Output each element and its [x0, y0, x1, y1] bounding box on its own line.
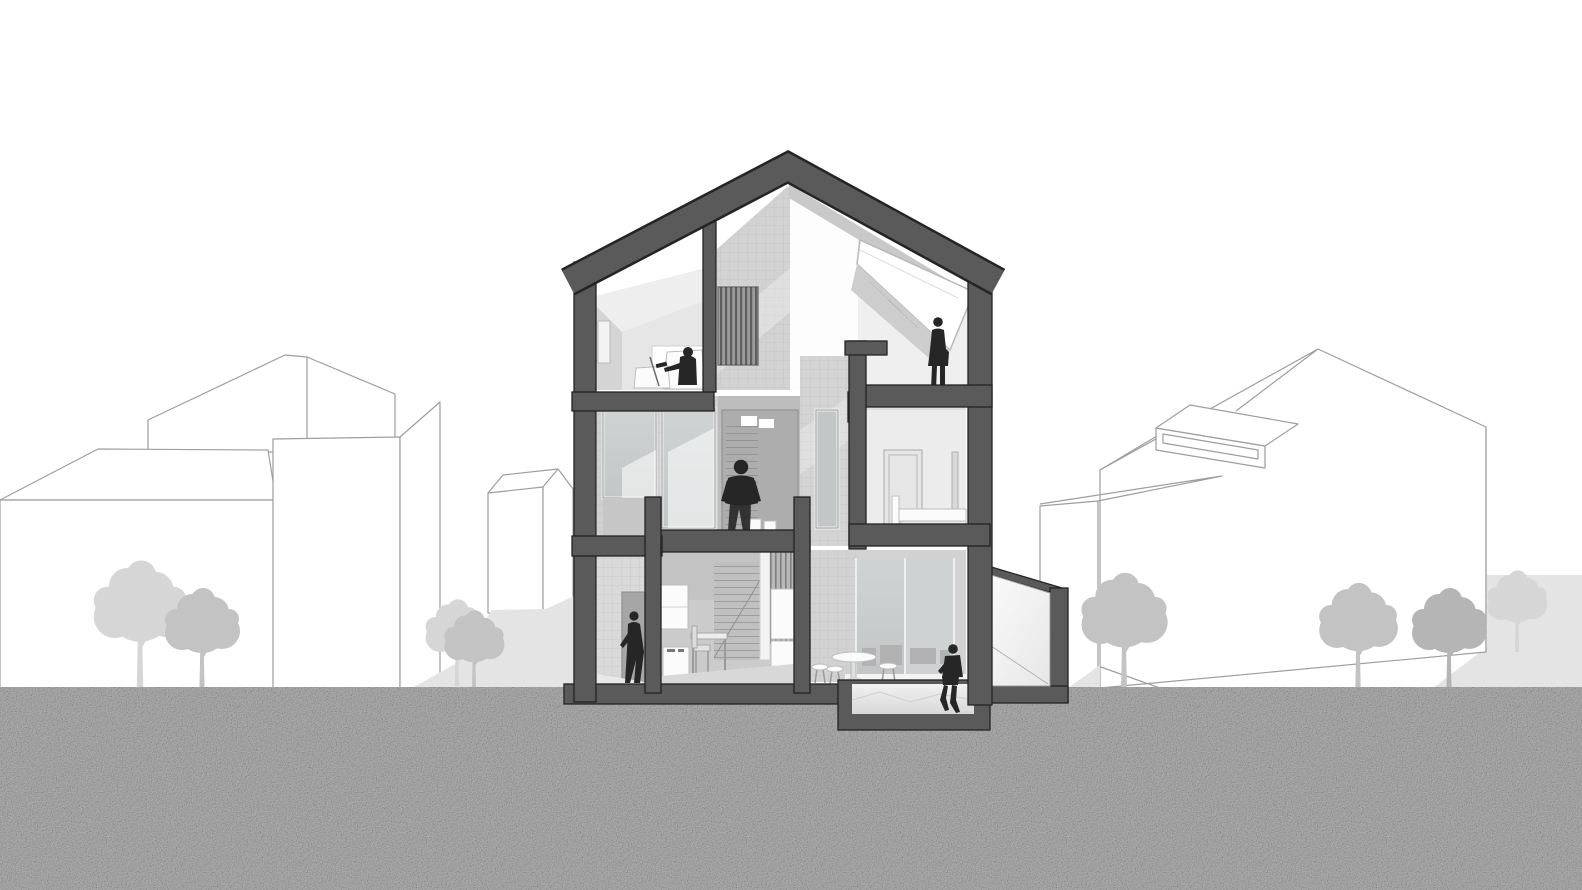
- hall-partition: [645, 497, 661, 693]
- tower-front: [273, 437, 400, 688]
- bedroom-wall: [849, 341, 866, 549]
- parapet-cap: [845, 341, 887, 355]
- courtyard-wall: [988, 566, 1068, 703]
- section-perspective-illustration: [0, 0, 1582, 890]
- right-wall: [968, 264, 992, 705]
- illustration-stage: [0, 0, 1582, 890]
- first-floor-slab: [646, 530, 810, 552]
- door-lite: [759, 419, 774, 428]
- stair-stringer: [760, 552, 770, 660]
- door-lite: [741, 416, 757, 426]
- kitchen-study: [661, 550, 798, 687]
- slot-window: [816, 410, 838, 528]
- staircase: [714, 562, 766, 660]
- attic-floor-slab: [858, 385, 992, 407]
- attic-floor-slab: [572, 392, 714, 411]
- cooktop: [667, 649, 675, 652]
- left-wall: [574, 262, 596, 702]
- ground-earth: [0, 687, 1582, 890]
- stair-hall: [718, 396, 800, 532]
- dining-partition: [794, 497, 810, 693]
- first-floor-slab: [849, 524, 990, 546]
- entry-hall: [597, 550, 646, 690]
- wall-picture: [598, 321, 610, 363]
- attic-partition: [703, 222, 716, 392]
